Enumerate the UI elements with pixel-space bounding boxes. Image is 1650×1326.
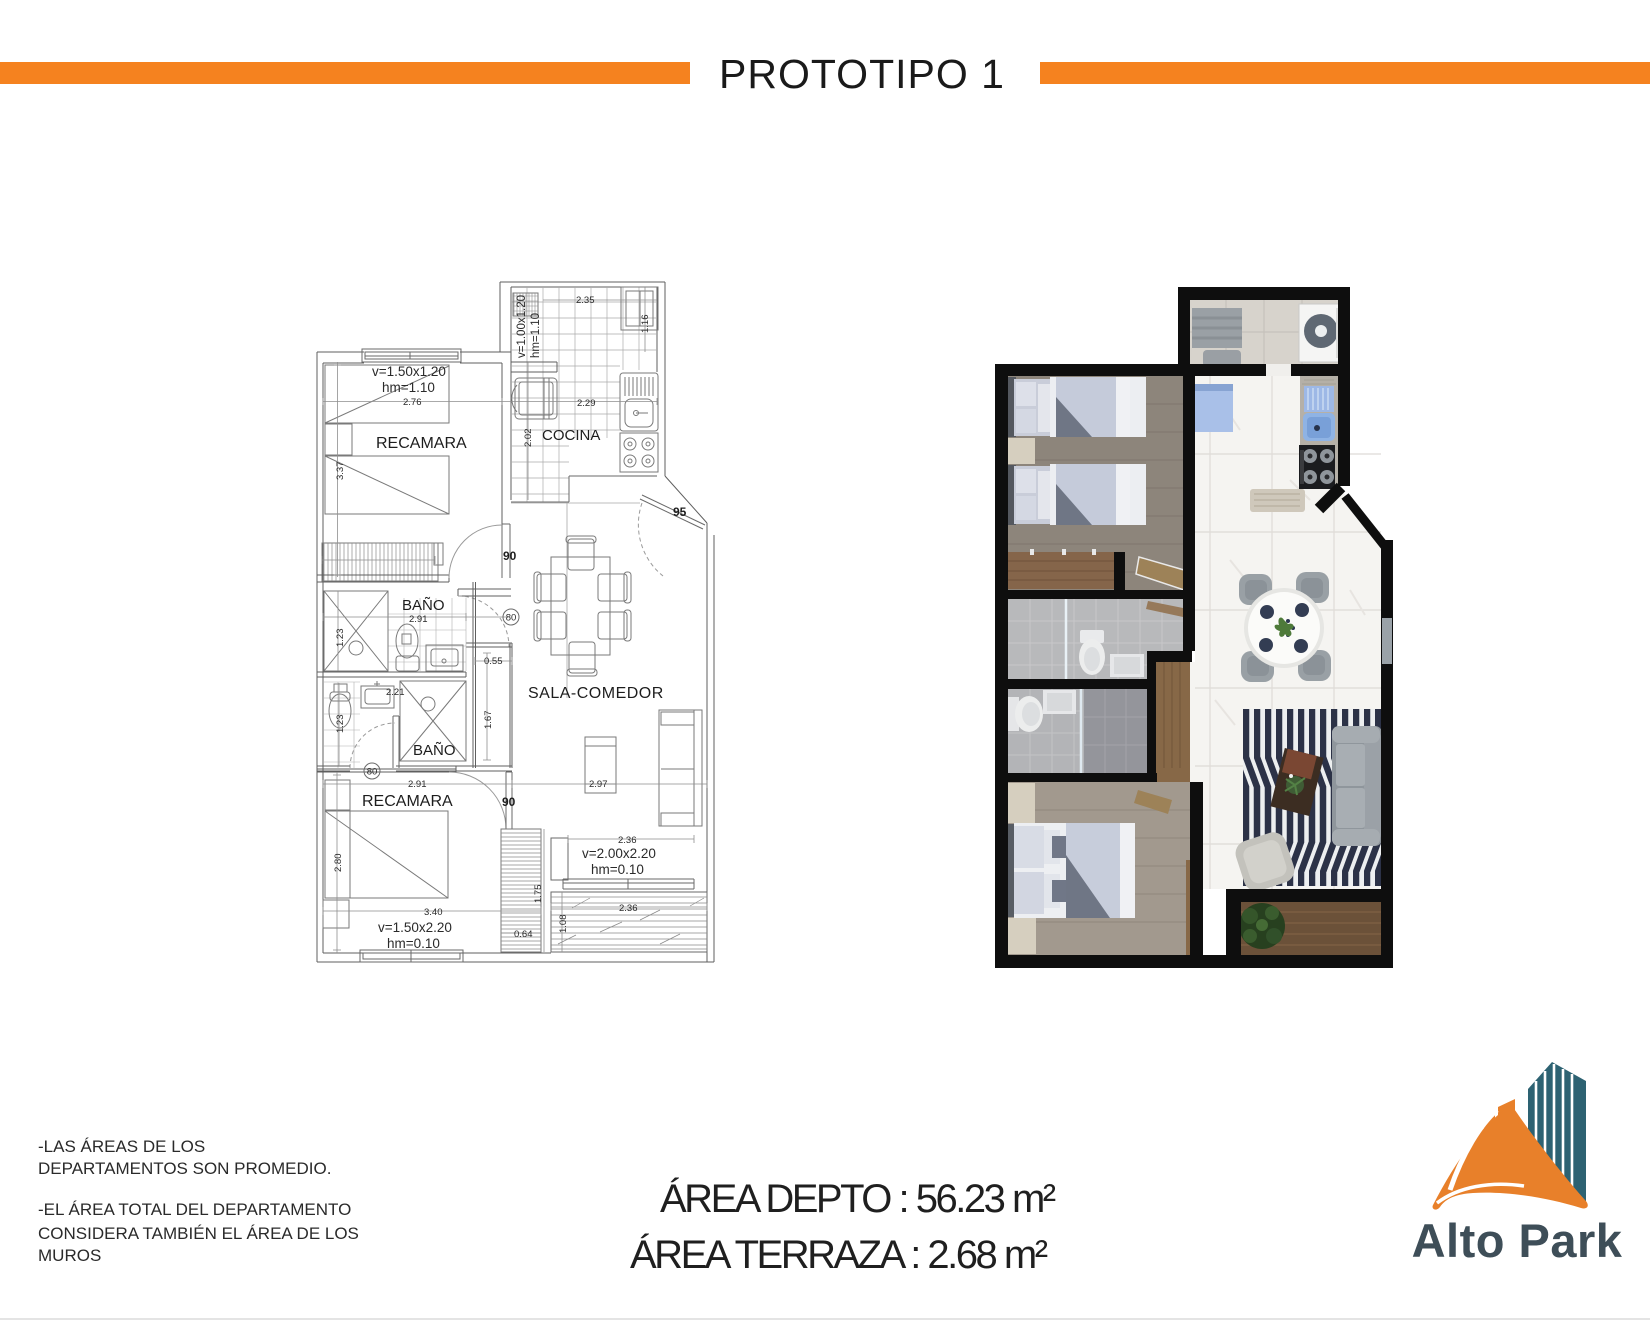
svg-text:2.36: 2.36 xyxy=(619,903,638,914)
svg-text:hm=1.10: hm=1.10 xyxy=(530,313,542,358)
svg-text:2.36: 2.36 xyxy=(618,835,637,846)
svg-text:BAÑO: BAÑO xyxy=(413,742,456,759)
svg-text:SALA-COMEDOR: SALA-COMEDOR xyxy=(528,685,664,702)
svg-text:90: 90 xyxy=(502,795,516,809)
svg-text:RECAMARA: RECAMARA xyxy=(376,435,467,452)
svg-text:hm=0.10: hm=0.10 xyxy=(591,862,644,877)
svg-text:80: 80 xyxy=(506,613,517,624)
svg-text:1.67: 1.67 xyxy=(483,711,494,730)
svg-text:2.21: 2.21 xyxy=(386,687,405,698)
svg-text:2.97: 2.97 xyxy=(589,779,608,790)
svg-text:BAÑO: BAÑO xyxy=(402,597,445,614)
svg-text:2.91: 2.91 xyxy=(409,614,428,625)
svg-text:v=1.50x1.20: v=1.50x1.20 xyxy=(372,364,446,379)
svg-text:v=1.00x1.20: v=1.00x1.20 xyxy=(516,295,528,358)
svg-text:0.55: 0.55 xyxy=(484,656,503,667)
svg-text:2.91: 2.91 xyxy=(408,779,427,790)
svg-text:RECAMARA: RECAMARA xyxy=(362,793,453,810)
svg-text:MUROS: MUROS xyxy=(38,1246,101,1265)
svg-text:95: 95 xyxy=(673,505,687,519)
svg-text:-LAS ÁREAS DE LOS: -LAS ÁREAS DE LOS xyxy=(38,1137,205,1156)
svg-text:2.76: 2.76 xyxy=(403,397,422,408)
svg-text:3.37: 3.37 xyxy=(335,462,346,481)
svg-text:hm=1.10: hm=1.10 xyxy=(382,380,435,395)
svg-text:80: 80 xyxy=(367,767,378,778)
svg-text:1.23: 1.23 xyxy=(335,629,346,648)
svg-text:ÁREA DEPTO : 56.23 m²: ÁREA DEPTO : 56.23 m² xyxy=(660,1176,1056,1221)
svg-text:ÁREA TERRAZA : 2.68 m²: ÁREA TERRAZA : 2.68 m² xyxy=(630,1232,1048,1277)
svg-text:1.16: 1.16 xyxy=(640,315,651,334)
svg-text:2.29: 2.29 xyxy=(577,398,596,409)
svg-text:v=2.00x2.20: v=2.00x2.20 xyxy=(582,846,656,861)
svg-text:0.64: 0.64 xyxy=(514,929,533,940)
svg-text:COCINA: COCINA xyxy=(542,427,600,444)
svg-text:hm=0.10: hm=0.10 xyxy=(387,936,440,951)
svg-text:Alto Park: Alto Park xyxy=(1412,1214,1623,1267)
svg-text:-EL ÁREA TOTAL DEL DEPARTAMENT: -EL ÁREA TOTAL DEL DEPARTAMENTO xyxy=(38,1200,351,1219)
svg-text:CONSIDERA TAMBIÉN EL ÁREA DE L: CONSIDERA TAMBIÉN EL ÁREA DE LOS xyxy=(38,1224,359,1243)
svg-text:2.80: 2.80 xyxy=(333,854,344,873)
svg-text:DEPARTAMENTOS SON PROMEDIO.: DEPARTAMENTOS SON PROMEDIO. xyxy=(38,1159,331,1178)
svg-text:2.35: 2.35 xyxy=(576,295,595,306)
svg-text:1.75: 1.75 xyxy=(533,885,544,904)
svg-text:90: 90 xyxy=(503,549,517,563)
svg-text:v=1.50x2.20: v=1.50x2.20 xyxy=(378,920,452,935)
svg-text:1.23: 1.23 xyxy=(335,715,346,734)
svg-text:3.40: 3.40 xyxy=(424,907,443,918)
svg-text:PROTOTIPO 1: PROTOTIPO 1 xyxy=(719,51,1005,97)
svg-text:1.08: 1.08 xyxy=(558,915,569,934)
svg-text:2.02: 2.02 xyxy=(523,429,534,448)
